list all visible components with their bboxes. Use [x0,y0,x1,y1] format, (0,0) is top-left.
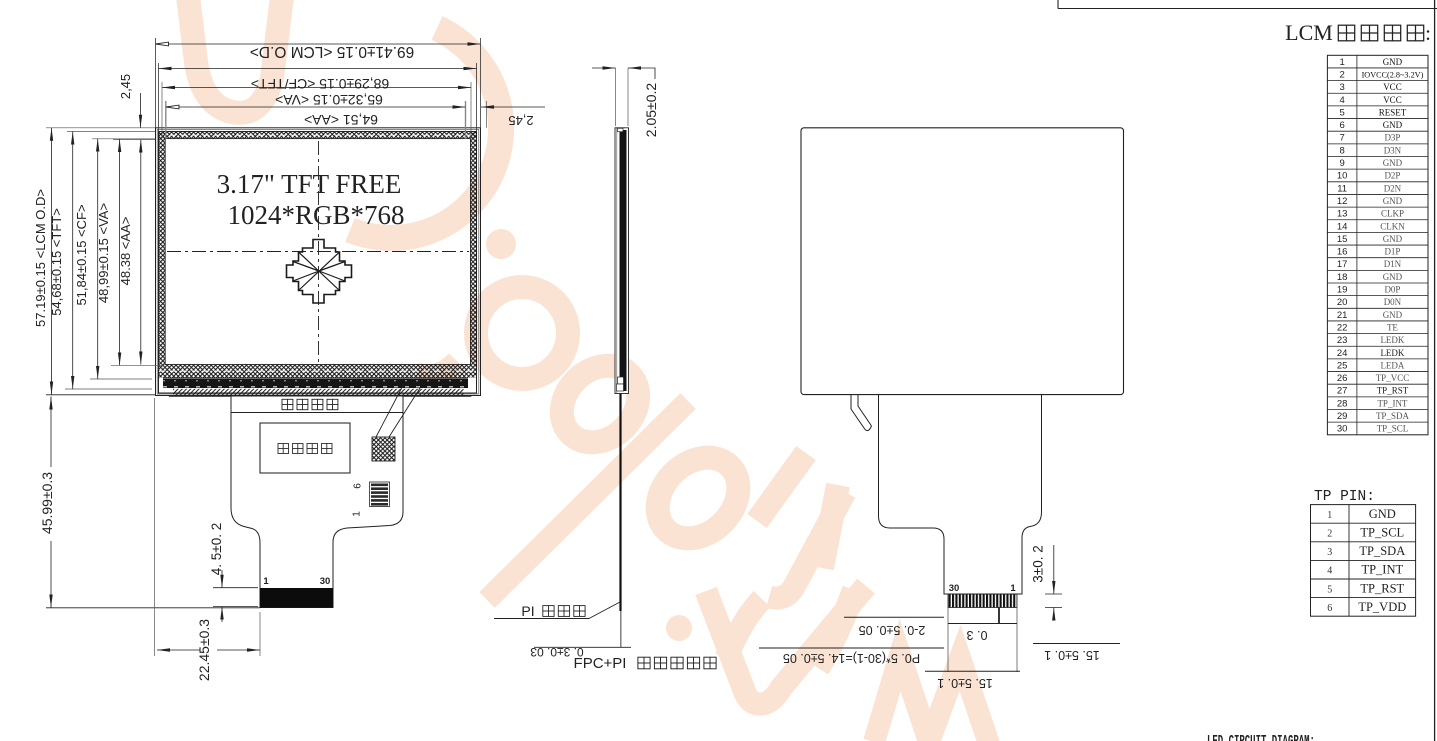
svg-text:LEDK: LEDK [1380,335,1404,345]
svg-text:68,29±0.15 <CF/TFT>: 68,29±0.15 <CF/TFT> [251,76,389,92]
svg-text:GND: GND [1383,234,1403,244]
svg-text:TP_SCL: TP_SCL [1360,526,1404,540]
svg-text:30: 30 [1337,424,1348,435]
svg-text:CLKN: CLKN [1380,221,1405,231]
svg-text:14: 14 [1337,221,1348,232]
svg-text:IOVCC(2.8~3.2V): IOVCC(2.8~3.2V) [1362,70,1424,79]
svg-text:10: 10 [1337,171,1348,182]
svg-text:22.45±0.3: 22.45±0.3 [196,619,212,681]
svg-text:15. 5±0. 1: 15. 5±0. 1 [937,676,993,690]
svg-text:16: 16 [1337,247,1348,258]
svg-text:26: 26 [1337,373,1348,384]
svg-text:0. 3: 0. 3 [967,628,988,642]
svg-text:2,45: 2,45 [508,113,533,128]
svg-text:TP_SDA: TP_SDA [1376,411,1410,421]
svg-text:12: 12 [1337,196,1348,207]
svg-text:23: 23 [1337,335,1348,346]
svg-text:64,51 <AA>: 64,51 <AA> [304,112,378,128]
svg-text:TP_RST: TP_RST [1360,581,1404,595]
svg-text:D3N: D3N [1384,145,1402,155]
svg-text:27: 27 [1337,386,1348,397]
svg-text:4. 5±0. 2: 4. 5±0. 2 [209,523,224,575]
svg-text:25: 25 [1337,360,1348,371]
svg-text:48.38 <AA>: 48.38 <AA> [118,217,133,286]
svg-text:15: 15 [1337,234,1348,245]
svg-text:5: 5 [1340,107,1345,118]
svg-text:51,84±0.15 <CF>: 51,84±0.15 <CF> [74,204,89,305]
svg-text:65,32±0.15 <VA>: 65,32±0.15 <VA> [275,92,383,108]
svg-text:4: 4 [1340,95,1345,106]
svg-text:TP_INT: TP_INT [1377,398,1407,408]
svg-text:1: 1 [263,576,269,587]
svg-text:FPC+PI: FPC+PI [574,655,627,672]
svg-text:2.05±0.2: 2.05±0.2 [643,83,659,138]
svg-text:D0P: D0P [1384,285,1400,295]
svg-text:PI: PI [521,603,534,619]
svg-text:D1P: D1P [1384,247,1400,257]
svg-text:1: 1 [352,511,363,517]
svg-text:TP PIN:: TP PIN: [1314,489,1375,505]
svg-text:13: 13 [1337,209,1348,220]
svg-text:7: 7 [1340,133,1345,144]
svg-text:LED CIRCUIT DIAGRAM:: LED CIRCUIT DIAGRAM: [1207,733,1315,741]
svg-text:P0. 5*(30-1)=14. 5±0. 05: P0. 5*(30-1)=14. 5±0. 05 [783,651,920,665]
svg-text:28: 28 [1337,398,1348,409]
svg-text:6: 6 [1340,120,1345,131]
svg-text:6: 6 [1327,603,1332,614]
svg-text:29: 29 [1337,411,1348,422]
svg-text:D0N: D0N [1384,297,1402,307]
svg-text:48,99±0.15 <VA>: 48,99±0.15 <VA> [96,203,111,303]
svg-text:3±0. 2: 3±0. 2 [1031,545,1046,582]
svg-text:GND: GND [1383,196,1403,206]
svg-text::: : [1425,21,1431,45]
svg-text:11: 11 [1337,183,1347,194]
svg-text:TP_VCC: TP_VCC [1376,373,1410,383]
svg-text:2,45: 2,45 [118,74,133,99]
svg-text:GND: GND [1383,57,1403,67]
svg-text:69.41±0.15 <LCM O.D>: 69.41±0.15 <LCM O.D> [250,43,414,60]
svg-text:17: 17 [1337,259,1348,270]
svg-text:8: 8 [1340,145,1345,156]
svg-text:30: 30 [949,583,960,594]
svg-text:30: 30 [320,576,331,587]
svg-text:1: 1 [1327,510,1332,521]
svg-text:24: 24 [1337,348,1348,359]
svg-text:19: 19 [1337,285,1348,296]
svg-text:1024*RGB*768: 1024*RGB*768 [227,200,404,230]
svg-text:GND: GND [1369,507,1396,521]
svg-text:21: 21 [1337,310,1348,321]
svg-text:D2P: D2P [1384,171,1400,181]
svg-text:VCC: VCC [1383,95,1402,105]
svg-text:4: 4 [1327,566,1332,577]
svg-text:LEDA: LEDA [1380,360,1404,370]
svg-text:GND: GND [1383,272,1403,282]
svg-text:3: 3 [1340,82,1345,93]
svg-text:2: 2 [1327,529,1332,540]
svg-text:D2N: D2N [1384,183,1402,193]
svg-text:3.17" TFT FREE: 3.17" TFT FREE [217,169,402,199]
svg-text:3: 3 [1327,547,1332,558]
svg-text:45.99±0.3: 45.99±0.3 [39,472,55,534]
svg-text:6: 6 [353,483,364,489]
svg-text:57.19±0.15 <LCM O.D>: 57.19±0.15 <LCM O.D> [33,189,48,327]
svg-text:LCM: LCM [1285,20,1333,45]
svg-text:VCC: VCC [1383,82,1402,92]
svg-text:D3P: D3P [1384,133,1400,143]
svg-text:TP_VDD: TP_VDD [1358,600,1406,614]
svg-text:22: 22 [1337,322,1348,333]
svg-text:15. 5±0. 1: 15. 5±0. 1 [1044,648,1100,662]
svg-text:20: 20 [1337,297,1348,308]
svg-text:D1N: D1N [1384,259,1402,269]
svg-text:GND: GND [1383,310,1403,320]
svg-text:GND: GND [1383,158,1403,168]
svg-text:TE: TE [1387,322,1398,332]
svg-text:18: 18 [1337,272,1348,283]
svg-text:TP_SDA: TP_SDA [1359,544,1405,558]
svg-text:1: 1 [1010,583,1016,594]
svg-text:5: 5 [1327,584,1332,595]
svg-text:GND: GND [1383,120,1403,130]
svg-text:RESET: RESET [1379,107,1407,117]
svg-text:9: 9 [1340,158,1345,169]
svg-text:TP_RST: TP_RST [1377,386,1409,396]
svg-text:TP_SCL: TP_SCL [1377,424,1409,434]
svg-text:CLKP: CLKP [1381,209,1404,219]
svg-text:2-0. 5±0. 05: 2-0. 5±0. 05 [859,623,926,637]
svg-text:LEDK: LEDK [1380,348,1404,358]
svg-text:TP_INT: TP_INT [1361,563,1403,577]
svg-text:2: 2 [1340,69,1345,80]
svg-text:1: 1 [1340,57,1345,68]
svg-text:54,68±0.15 <TFT>: 54,68±0.15 <TFT> [49,208,64,316]
